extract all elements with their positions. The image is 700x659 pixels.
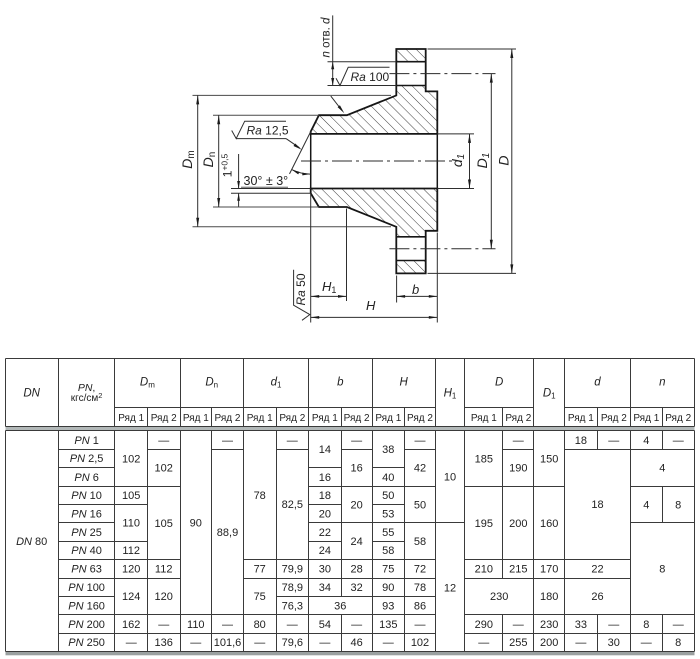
svg-text:190: 190	[509, 463, 527, 475]
svg-text:PN 200: PN 200	[68, 619, 105, 631]
svg-text:14: 14	[319, 444, 331, 456]
svg-text:—: —	[287, 435, 298, 447]
svg-text:162: 162	[122, 619, 140, 631]
svg-text:28: 28	[350, 564, 362, 576]
svg-text:40: 40	[382, 472, 394, 484]
svg-text:24: 24	[350, 536, 362, 548]
svg-text:Ряд 2: Ряд 2	[665, 413, 691, 424]
svg-text:n отв. d: n отв. d	[321, 17, 333, 58]
svg-text:75: 75	[382, 564, 394, 576]
svg-text:D: D	[496, 155, 512, 165]
svg-text:102: 102	[155, 463, 173, 475]
svg-text:46: 46	[350, 637, 362, 649]
svg-text:53: 53	[382, 509, 394, 521]
svg-text:290: 290	[475, 619, 493, 631]
svg-text:54: 54	[319, 619, 331, 631]
svg-text:Ряд 2: Ряд 2	[601, 413, 627, 424]
svg-text:10: 10	[444, 472, 456, 484]
svg-text:105: 105	[122, 490, 140, 502]
svg-text:PN 2,5: PN 2,5	[70, 453, 104, 465]
svg-text:79,9: 79,9	[282, 564, 303, 576]
svg-text:90: 90	[190, 518, 202, 530]
svg-text:82,5: 82,5	[282, 499, 303, 511]
svg-text:30: 30	[608, 637, 620, 649]
svg-text:—: —	[415, 435, 426, 447]
svg-text:PN 6: PN 6	[74, 472, 98, 484]
svg-text:d: d	[594, 377, 601, 389]
svg-text:—: —	[513, 619, 524, 631]
svg-text:215: 215	[509, 564, 527, 576]
svg-text:—: —	[190, 637, 201, 649]
svg-text:—: —	[158, 435, 169, 447]
svg-text:101,6: 101,6	[214, 637, 242, 649]
svg-text:Ra 100: Ra 100	[351, 70, 390, 84]
svg-text:4: 4	[659, 463, 665, 475]
svg-text:112: 112	[155, 564, 173, 576]
svg-text:38: 38	[382, 444, 394, 456]
svg-text:102: 102	[122, 453, 140, 465]
svg-text:24: 24	[319, 545, 331, 557]
svg-text:D: D	[495, 377, 503, 389]
svg-text:102: 102	[411, 637, 429, 649]
svg-text:180: 180	[540, 591, 558, 603]
svg-text:30: 30	[319, 564, 331, 576]
svg-text:200: 200	[540, 637, 558, 649]
svg-text:—: —	[222, 435, 233, 447]
svg-text:4: 4	[643, 435, 649, 447]
svg-text:Ряд 1: Ряд 1	[375, 413, 401, 424]
svg-text:PN 250: PN 250	[68, 637, 105, 649]
svg-text:n: n	[659, 377, 665, 389]
svg-text:PN 40: PN 40	[71, 545, 102, 557]
svg-text:78: 78	[254, 490, 266, 502]
svg-text:20: 20	[319, 509, 331, 521]
svg-text:93: 93	[382, 600, 394, 612]
svg-text:150: 150	[540, 453, 558, 465]
svg-text:Ряд 2: Ряд 2	[505, 413, 531, 424]
svg-text:DN 80: DN 80	[16, 536, 47, 548]
svg-text:8: 8	[659, 564, 665, 576]
svg-text:—: —	[351, 619, 362, 631]
svg-text:79,6: 79,6	[282, 637, 303, 649]
svg-text:—: —	[415, 619, 426, 631]
svg-text:—: —	[608, 619, 619, 631]
svg-text:PN 160: PN 160	[68, 600, 105, 612]
svg-text:кгс/см2: кгс/см2	[71, 391, 103, 404]
svg-text:22: 22	[319, 527, 331, 539]
svg-text:—: —	[673, 435, 684, 447]
svg-text:Ряд 1: Ряд 1	[118, 413, 144, 424]
svg-text:—: —	[351, 435, 362, 447]
svg-text:PN 63: PN 63	[71, 564, 102, 576]
svg-text:b: b	[337, 377, 344, 389]
svg-text:—: —	[383, 637, 394, 649]
svg-text:16: 16	[350, 463, 362, 475]
svg-text:30° ± 3°: 30° ± 3°	[244, 174, 289, 188]
svg-text:18: 18	[591, 499, 603, 511]
svg-text:—: —	[254, 637, 265, 649]
svg-text:78,9: 78,9	[282, 582, 303, 594]
svg-text:26: 26	[591, 591, 603, 603]
svg-text:—: —	[319, 637, 330, 649]
svg-text:76,3: 76,3	[282, 600, 303, 612]
svg-text:135: 135	[379, 619, 397, 631]
svg-text:136: 136	[155, 637, 173, 649]
svg-text:Ряд 1: Ряд 1	[247, 413, 273, 424]
svg-text:120: 120	[155, 591, 173, 603]
svg-text:200: 200	[509, 518, 527, 530]
svg-text:Ряд 1: Ряд 1	[183, 413, 209, 424]
svg-text:170: 170	[540, 564, 558, 576]
svg-text:Ряд 2: Ряд 2	[215, 413, 241, 424]
svg-text:—: —	[608, 435, 619, 447]
svg-text:80: 80	[254, 619, 266, 631]
svg-text:4: 4	[643, 499, 649, 511]
svg-text:Ряд 1: Ряд 1	[568, 413, 594, 424]
svg-text:8: 8	[675, 637, 681, 649]
svg-text:230: 230	[490, 591, 508, 603]
svg-text:210: 210	[475, 564, 493, 576]
svg-text:Ряд 1: Ряд 1	[471, 413, 497, 424]
svg-text:—: —	[513, 435, 524, 447]
svg-text:PN 1: PN 1	[74, 435, 98, 447]
svg-text:230: 230	[540, 619, 558, 631]
svg-text:—: —	[126, 637, 137, 649]
svg-text:H: H	[366, 298, 376, 313]
svg-text:—: —	[673, 619, 684, 631]
svg-text:18: 18	[319, 490, 331, 502]
svg-text:Ряд 1: Ряд 1	[312, 413, 338, 424]
svg-text:—: —	[287, 619, 298, 631]
svg-text:50: 50	[382, 490, 394, 502]
svg-text:112: 112	[122, 545, 140, 557]
svg-text:195: 195	[475, 518, 493, 530]
svg-text:75: 75	[254, 591, 266, 603]
svg-text:160: 160	[540, 518, 558, 530]
svg-text:55: 55	[382, 527, 394, 539]
svg-text:8: 8	[675, 499, 681, 511]
svg-text:50: 50	[414, 499, 426, 511]
svg-text:PN 16: PN 16	[71, 509, 102, 521]
svg-text:Ra 12,5: Ra 12,5	[247, 124, 289, 138]
svg-text:Ряд 2: Ряд 2	[279, 413, 305, 424]
svg-text:8: 8	[643, 619, 649, 631]
svg-text:72: 72	[414, 564, 426, 576]
svg-text:Ряд 1: Ряд 1	[633, 413, 659, 424]
svg-text:110: 110	[187, 619, 205, 631]
svg-text:86: 86	[414, 600, 426, 612]
svg-text:Ряд 2: Ряд 2	[344, 413, 370, 424]
svg-text:36: 36	[334, 600, 346, 612]
svg-text:77: 77	[254, 564, 266, 576]
svg-text:PN 25: PN 25	[71, 527, 102, 539]
svg-text:58: 58	[382, 545, 394, 557]
svg-text:22: 22	[591, 564, 603, 576]
svg-text:18: 18	[575, 435, 587, 447]
svg-text:90: 90	[382, 582, 394, 594]
svg-text:—: —	[478, 637, 489, 649]
svg-text:185: 185	[475, 453, 493, 465]
svg-text:12: 12	[444, 583, 456, 595]
svg-text:32: 32	[350, 582, 362, 594]
svg-text:DN: DN	[23, 388, 40, 400]
svg-text:—: —	[641, 637, 652, 649]
svg-text:110: 110	[122, 518, 140, 530]
svg-text:Ряд 2: Ряд 2	[151, 413, 177, 424]
svg-text:105: 105	[155, 518, 173, 530]
svg-text:—: —	[575, 637, 586, 649]
svg-text:20: 20	[350, 499, 362, 511]
svg-text:Ряд 2: Ряд 2	[407, 413, 433, 424]
svg-text:Ra 50: Ra 50	[294, 273, 308, 305]
svg-text:33: 33	[575, 619, 587, 631]
svg-text:88,9: 88,9	[217, 527, 238, 539]
svg-text:255: 255	[509, 637, 527, 649]
svg-text:120: 120	[122, 564, 140, 576]
svg-text:124: 124	[122, 591, 140, 603]
svg-text:16: 16	[319, 472, 331, 484]
svg-text:78: 78	[414, 582, 426, 594]
svg-text:H: H	[400, 377, 409, 389]
svg-text:—: —	[222, 619, 233, 631]
svg-text:58: 58	[414, 536, 426, 548]
svg-text:PN 10: PN 10	[71, 490, 102, 502]
svg-text:34: 34	[319, 582, 331, 594]
svg-text:b: b	[412, 282, 419, 297]
svg-text:42: 42	[414, 463, 426, 475]
svg-text:—: —	[158, 619, 169, 631]
svg-text:PN 100: PN 100	[68, 582, 105, 594]
